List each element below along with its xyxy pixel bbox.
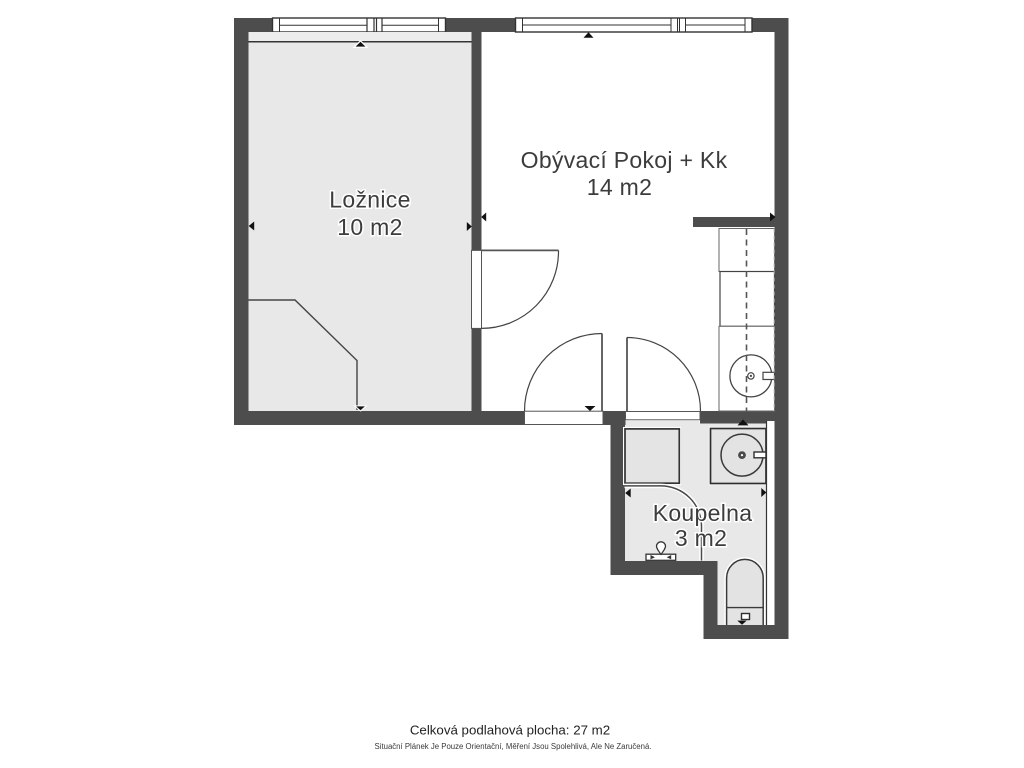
svg-text:Koupelna: Koupelna [653,500,753,526]
svg-text:3 m2: 3 m2 [675,525,727,551]
svg-text:Situační Plánek Je Pouze Orien: Situační Plánek Je Pouze Orientační, Měř… [375,742,652,751]
svg-text:14 m2: 14 m2 [587,174,652,200]
svg-text:Celková podlahová plocha: 27 m: Celková podlahová plocha: 27 m2 [410,723,610,738]
svg-text:10 m2: 10 m2 [337,214,402,240]
svg-text:Obývací Pokoj + Kk: Obývací Pokoj + Kk [521,147,728,173]
svg-text:Ložnice: Ložnice [329,187,410,213]
